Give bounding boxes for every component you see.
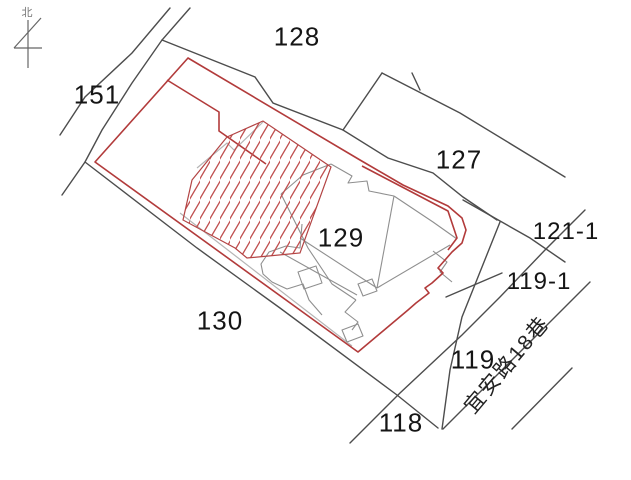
boundary-127-west [343,73,382,130]
boundary-left-outer [60,8,170,135]
road-lower-edge [512,368,572,429]
parcel-label-129: 129 [318,223,364,254]
parcel-label-128: 128 [274,22,320,53]
parcel-label-118: 118 [379,408,423,439]
interior-steps [345,300,358,330]
hatched-building-area [183,121,331,258]
parcel-label-130: 130 [197,306,243,337]
north-label: 北 [22,4,33,20]
parcel-label-119-1: 119-1 [507,268,572,296]
cadastral-map: 128 151 127 129 130 121-1 119-1 119 118 … [0,0,631,480]
north-arrow-icon [14,18,42,68]
interior-line [331,164,394,196]
parcel-label-151: 151 [74,80,120,111]
interior-line [377,196,394,288]
boundary-119-1-tick [446,273,502,297]
parcel-label-127: 127 [436,145,482,176]
interior-line [394,196,457,239]
interior-room [298,266,322,289]
building-double-line [362,166,457,250]
parcel-label-121-1: 121-1 [533,218,599,246]
interior-room [342,324,363,342]
survey-tick-top [412,73,420,90]
